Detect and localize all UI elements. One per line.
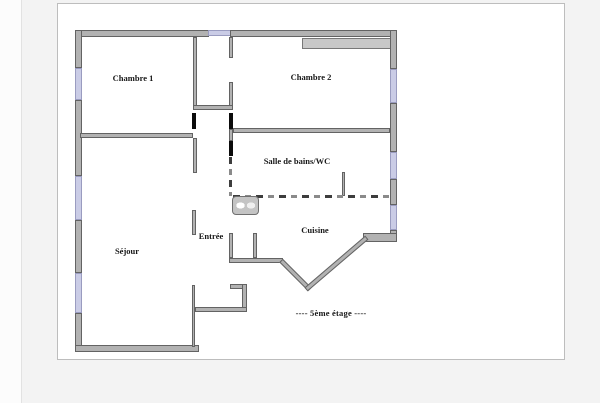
bath-hall-dashed-wall bbox=[229, 157, 232, 196]
left-wall-window-2 bbox=[75, 176, 82, 220]
entree-left-stub bbox=[192, 210, 196, 235]
chambre2-bath-wall bbox=[233, 128, 390, 133]
left-wall-1 bbox=[75, 30, 82, 68]
right-wall-2 bbox=[390, 103, 397, 152]
top-wall-right bbox=[230, 30, 397, 37]
door-opening-bathroom bbox=[229, 141, 233, 156]
room-label-sejour: Séjour bbox=[115, 246, 139, 256]
right-wall-window-2 bbox=[390, 152, 397, 179]
vestibule-right-wall-top bbox=[229, 37, 233, 58]
vestibule-left-wall bbox=[193, 37, 197, 110]
entree-kitchen-wall bbox=[229, 258, 283, 263]
right-wall-3 bbox=[390, 179, 397, 205]
sejour-right-wall bbox=[192, 285, 195, 347]
room-label-chambre2: Chambre 2 bbox=[291, 72, 332, 82]
door-opening-chambre1 bbox=[192, 113, 196, 129]
room-label-cuisine: Cuisine bbox=[301, 225, 328, 235]
chambre2-closet bbox=[302, 38, 392, 49]
bottom-wall bbox=[75, 345, 199, 352]
top-wall-left bbox=[75, 30, 209, 37]
washbasin-fixture bbox=[232, 196, 259, 215]
bathroom-stub-wall bbox=[342, 172, 345, 196]
room-label-salle-de-bains: Salle de bains/WC bbox=[264, 156, 331, 166]
chambre1-sejour-wall bbox=[80, 133, 193, 138]
left-wall-window-3 bbox=[75, 273, 82, 313]
kitchen-bay-ledge bbox=[363, 233, 397, 242]
right-wall-1 bbox=[390, 30, 397, 69]
sejour-hall-wall bbox=[193, 138, 197, 173]
door-opening-chambre2 bbox=[229, 113, 233, 129]
floor-note: ---- 5ème étage ---- bbox=[296, 308, 367, 318]
left-wall-3 bbox=[75, 220, 82, 273]
vestibule-bottom-wall bbox=[193, 105, 233, 110]
room-label-chambre1: Chambre 1 bbox=[113, 73, 154, 83]
entree-step-bottom-wall bbox=[195, 307, 247, 312]
room-label-entree: Entrée bbox=[199, 231, 224, 241]
kitchen-bay-wall-right bbox=[304, 236, 368, 292]
floorplan-canvas: ---- 5ème étage ---- Chambre 1Chambre 2S… bbox=[0, 0, 600, 403]
right-wall-window-1 bbox=[390, 69, 397, 103]
kitchen-door-left-wall bbox=[229, 233, 233, 258]
right-wall-window-3 bbox=[390, 205, 397, 230]
top-wall-window bbox=[208, 30, 231, 36]
left-wall-2 bbox=[75, 100, 82, 176]
kitchen-door-right-wall bbox=[253, 233, 257, 258]
left-wall-window-1 bbox=[75, 68, 82, 100]
hall-bath-pier bbox=[229, 129, 233, 141]
